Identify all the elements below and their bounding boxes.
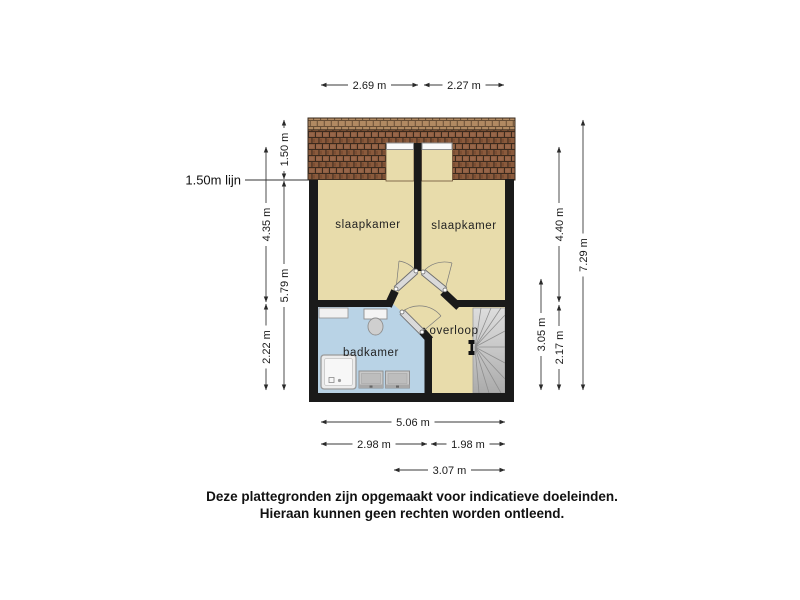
- label-slaapkamer-left: slaapkamer: [335, 219, 400, 231]
- label-slaapkamer-right: slaapkamer: [431, 220, 496, 232]
- wall-exterior-left: [309, 180, 318, 402]
- svg-text:1.50 m: 1.50 m: [279, 133, 291, 167]
- svg-text:3.05 m: 3.05 m: [536, 318, 548, 352]
- svg-text:2.17 m: 2.17 m: [554, 331, 566, 365]
- svg-text:3.07 m: 3.07 m: [433, 465, 467, 477]
- svg-text:2.22 m: 2.22 m: [261, 330, 273, 364]
- dimension-left-0: 1.50 m: [277, 120, 291, 179]
- wall-bathroom-top: [318, 300, 390, 307]
- svg-text:2.69 m: 2.69 m: [353, 80, 387, 92]
- dimension-top-1: 2.27 m: [424, 78, 504, 92]
- wall-exterior-bottom: [309, 393, 514, 402]
- svg-text:5.06 m: 5.06 m: [396, 417, 430, 429]
- dormer-window-left: [387, 143, 414, 150]
- svg-text:7.29 m: 7.29 m: [578, 238, 590, 272]
- dimension-left-3: 2.22 m: [259, 304, 273, 390]
- dimension-top-0: 2.69 m: [321, 78, 418, 92]
- sink-2: [386, 371, 410, 388]
- svg-text:2.98 m: 2.98 m: [357, 439, 391, 451]
- height-line-label: 1.50m lijn: [185, 173, 241, 188]
- label-overloop: overloop: [430, 325, 479, 337]
- wall-bedroom-divider: [414, 143, 422, 271]
- dimension-bottom-2: 1.98 m: [431, 437, 505, 451]
- dormer-window-right: [422, 143, 452, 150]
- dimension-left-1: 4.35 m: [259, 147, 273, 302]
- disclaimer-line-2: Hieraan kunnen geen rechten worden ontle…: [260, 506, 565, 521]
- height-line-annotation: 1.50m lijn: [185, 173, 309, 188]
- svg-text:5.79 m: 5.79 m: [279, 269, 291, 303]
- sink-1: [359, 371, 383, 388]
- svg-text:2.27 m: 2.27 m: [447, 80, 481, 92]
- dimension-right-0: 4.40 m: [552, 147, 566, 302]
- shower: [321, 355, 356, 389]
- dimension-right-2: 2.17 m: [552, 305, 566, 390]
- dormer-right: [422, 143, 453, 181]
- roof-ridge-band: [309, 119, 515, 130]
- counter: [319, 308, 348, 318]
- wall-bathroom-right: [425, 336, 433, 393]
- label-badkamer: badkamer: [343, 347, 399, 359]
- dimension-bottom-3: 3.07 m: [394, 463, 505, 477]
- dimension-bottom-1: 2.98 m: [321, 437, 427, 451]
- dormer-left: [386, 143, 414, 181]
- floorplan-page: slaapkamer slaapkamer badkamer overloop …: [0, 0, 800, 600]
- floorplan-drawing: slaapkamer slaapkamer badkamer overloop …: [0, 0, 800, 600]
- svg-text:4.40 m: 4.40 m: [554, 208, 566, 242]
- svg-text:1.98 m: 1.98 m: [451, 439, 485, 451]
- dimension-right-3: 7.29 m: [576, 120, 590, 390]
- svg-text:4.35 m: 4.35 m: [261, 208, 273, 242]
- disclaimer-line-1: Deze plattegronden zijn opgemaakt voor i…: [206, 489, 618, 504]
- wall-exterior-right: [505, 179, 514, 402]
- wall-bedroom-right-bottom: [455, 300, 505, 307]
- dimension-bottom-0: 5.06 m: [321, 415, 505, 429]
- dimension-right-1: 3.05 m: [534, 279, 548, 390]
- dimension-left-2: 5.79 m: [277, 181, 291, 390]
- stairs: [469, 308, 506, 393]
